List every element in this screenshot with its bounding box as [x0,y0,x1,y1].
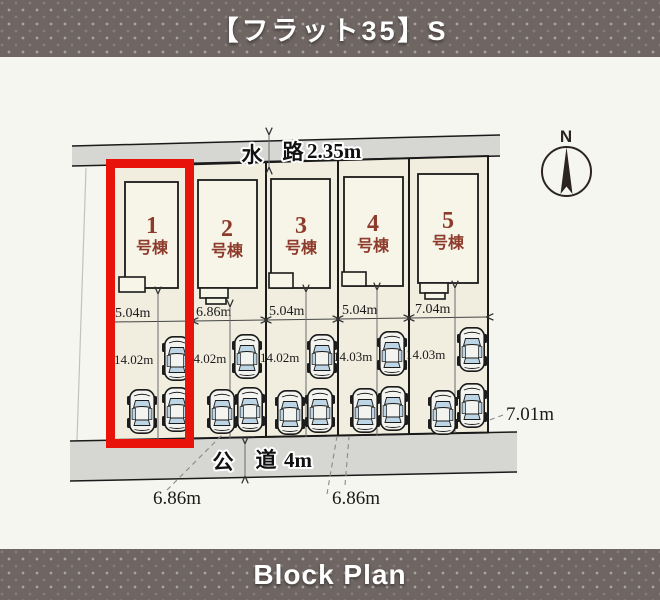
house-4-porch [342,272,366,286]
lot-1-depth-label: 14.02m [114,352,153,367]
car-icon [305,389,335,432]
car-icon [350,389,380,432]
lot-4-depth-label: 14.03m [333,349,372,364]
house-1-porch [119,277,145,292]
car-icon [232,335,262,378]
block-plan-page: 1 号棟 5.04m 14.02m 2 号棟 6.86m 14.02m [0,0,660,600]
waterway-dimension: 2.35m [307,139,362,163]
lot-3-depth-label: 14.02m [260,350,299,365]
lot-5-number: 5 [442,208,454,234]
waterway-label: 水 路 2.35m [242,134,362,168]
lot-3-width-label: 5.04m [269,304,305,319]
side-dimension-leader [487,415,503,421]
house-5-porch [420,283,448,293]
lot-4-width-label: 5.04m [342,303,378,318]
house-3-porch [269,273,293,288]
header-title: 【フラット35】S [211,9,448,48]
site-west-boundary [77,168,86,440]
lot-1-width-label: 5.04m [115,306,151,321]
waterway-label-left: 水 [242,143,264,167]
lot-1-suffix: 号棟 [136,238,169,257]
car-icon [377,332,407,375]
house-2-porch [200,288,228,298]
lot-5-width-label: 7.04m [415,302,451,317]
car-icon [207,390,237,433]
frontage-label-1: 6.86m [153,488,201,509]
car-icon [457,328,487,371]
compass-icon: N [542,127,591,196]
car-icon [378,387,408,430]
compass-needle [561,147,573,194]
lot-3-number: 3 [295,213,307,239]
waterway-label-right: 路 [283,140,305,164]
lot-2-suffix: 号棟 [211,241,244,260]
house-2-porch-step [206,298,226,304]
lot-5-suffix: 号棟 [432,233,465,252]
footer-title: Block Plan [253,559,406,591]
lot-5-depth-label: 14.03m [406,347,445,362]
house-5-porch-step [425,293,445,299]
lot-4-suffix: 号棟 [357,236,390,255]
car-icon [275,391,305,434]
road-dimension: 4m [284,448,313,472]
lot-1-number: 1 [146,213,158,239]
lot-4-number: 4 [367,211,379,237]
lot-3-suffix: 号棟 [285,238,318,257]
compass-north-label: N [560,127,572,146]
lot-2-number: 2 [221,216,233,242]
car-icon [428,391,458,434]
side-dimension-label: 7.01m [506,404,554,425]
car-icon [457,384,487,427]
header-banner: 【フラット35】S [0,0,660,57]
frontage-label-2: 6.86m [332,488,380,509]
car-icon [235,388,265,431]
car-icon [127,390,157,433]
lot-2-width-label: 6.86m [196,305,232,320]
block-plan-canvas: 1 号棟 5.04m 14.02m 2 号棟 6.86m 14.02m [0,0,660,600]
road-label-right: 道 [256,448,277,472]
footer-banner: Block Plan [0,549,660,600]
road-label-left: 公 [213,450,234,474]
